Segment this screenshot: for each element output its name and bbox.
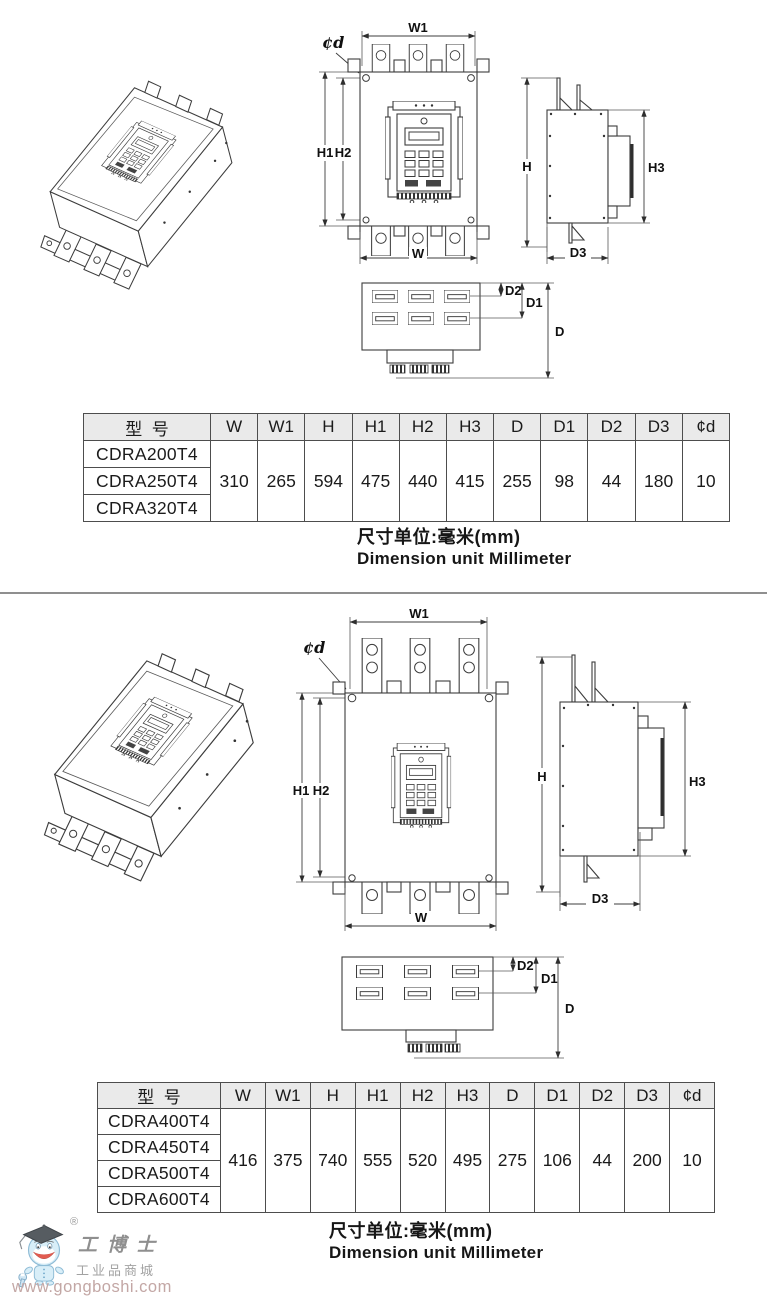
table-header-row: 型 号 W W1 H H1 H2 H3 D D1 D2 D3 ¢d: [84, 414, 730, 441]
dim-label-h2: H2: [313, 783, 330, 798]
dim-label-d3: D3: [570, 245, 587, 260]
table-row: CDRA200T4 310 265 594 475 440 415 255 98…: [84, 441, 730, 468]
model-name: CDRA320T4: [84, 495, 211, 522]
terminal-lugs-top: [372, 44, 464, 72]
side-chassis: [560, 702, 638, 856]
top-view-small-model: D2 D1 D: [336, 266, 578, 404]
dim-label-d: D: [565, 1001, 574, 1016]
dim-label-w: W: [412, 246, 425, 261]
dim-label-h: H: [537, 769, 546, 784]
front-view-large-model: W1 ¢d H1 H2 W: [291, 601, 547, 935]
col-header-model: 型 号: [98, 1083, 221, 1109]
dim-label-d1: D1: [526, 295, 543, 310]
table-header-row: 型 号 W W1 H H1 H2 H3 D D1 D2 D3 ¢d: [98, 1083, 715, 1109]
dim-label-d2: D2: [505, 283, 522, 298]
model-name: CDRA600T4: [98, 1187, 221, 1213]
unit-caption-en: Dimension unit Millimeter: [357, 548, 571, 570]
model-name: CDRA500T4: [98, 1161, 221, 1187]
dim-label-h2: H2: [335, 145, 352, 160]
model-name: CDRA450T4: [98, 1135, 221, 1161]
keypad: [391, 743, 451, 828]
registered-mark: ®: [70, 1216, 78, 1228]
dim-label-w: W: [415, 910, 428, 925]
side-view-large-model: H H3 D3: [528, 616, 766, 918]
isometric-view-large-model: [26, 622, 284, 886]
watermark-url: www.gongboshi.com: [12, 1278, 172, 1297]
terminal-lugs-top: [362, 638, 479, 693]
dimension-table-large-models: 型 号 W W1 H H1 H2 H3 D D1 D2 D3 ¢d CDRA40…: [97, 1082, 715, 1213]
dim-label-h3: H3: [648, 160, 665, 175]
side-view-small-model: H H3 D3: [513, 56, 767, 288]
dim-label-phid: ¢d: [322, 33, 344, 52]
dim-label-w1: W1: [408, 20, 428, 35]
watermark-brand: 工博士: [78, 1230, 165, 1257]
col-header-model: 型 号: [84, 414, 211, 441]
model-name: CDRA200T4: [84, 441, 211, 468]
heatsink: [638, 728, 664, 828]
unit-caption-2: 尺寸单位:毫米(mm) Dimension unit Millimeter: [329, 1220, 543, 1264]
dim-label-phid: ¢d: [303, 638, 325, 657]
watermark-subtitle: 工业品商城: [76, 1260, 156, 1279]
watermark: ® 工博士 工业品商城 www.gongboshi.com: [12, 1216, 222, 1308]
dim-label-d1: D1: [541, 971, 558, 986]
dim-label-w1: W1: [409, 606, 429, 621]
front-view-small-model: W1 ¢d H1 H2 W: [286, 6, 540, 272]
isometric-view-small-model: [24, 52, 260, 294]
side-chassis: [547, 110, 608, 223]
unit-caption-en: Dimension unit Millimeter: [329, 1242, 543, 1264]
dimension-table-small-models: 型 号 W W1 H H1 H2 H3 D D1 D2 D3 ¢d CDRA20…: [83, 413, 730, 522]
dim-label-h3: H3: [689, 774, 706, 789]
unit-caption-1: 尺寸单位:毫米(mm) Dimension unit Millimeter: [357, 526, 571, 570]
unit-caption-cn: 尺寸单位:毫米(mm): [329, 1220, 543, 1242]
model-name: CDRA250T4: [84, 468, 211, 495]
heatsink: [608, 136, 630, 206]
top-view-large-model: D2 D1 D: [336, 950, 578, 1072]
dim-label-h: H: [522, 159, 531, 174]
keypad: [385, 101, 463, 204]
table-row: CDRA400T4 416 375 740 555 520 495 275 10…: [98, 1109, 715, 1135]
model-name: CDRA400T4: [98, 1109, 221, 1135]
dim-label-h1: H1: [317, 145, 334, 160]
dim-label-d3: D3: [592, 891, 609, 906]
dim-label-h1: H1: [293, 783, 310, 798]
section-divider: [0, 592, 767, 594]
unit-caption-cn: 尺寸单位:毫米(mm): [357, 526, 571, 548]
dim-label-d2: D2: [517, 958, 534, 973]
dim-label-d: D: [555, 324, 564, 339]
